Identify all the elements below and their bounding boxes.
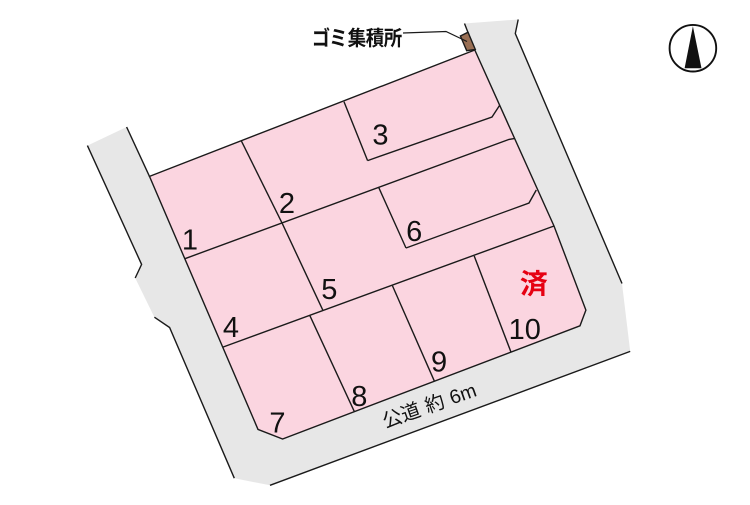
svg-text:9: 9 [431, 347, 447, 379]
svg-text:1: 1 [182, 225, 198, 257]
svg-text:4: 4 [223, 312, 239, 344]
svg-text:6: 6 [406, 216, 422, 248]
svg-text:10: 10 [509, 314, 541, 346]
svg-text:8: 8 [351, 381, 367, 413]
svg-text:5: 5 [321, 274, 337, 306]
svg-text:7: 7 [269, 407, 285, 439]
svg-text:3: 3 [372, 120, 388, 152]
svg-text:2: 2 [279, 188, 295, 220]
